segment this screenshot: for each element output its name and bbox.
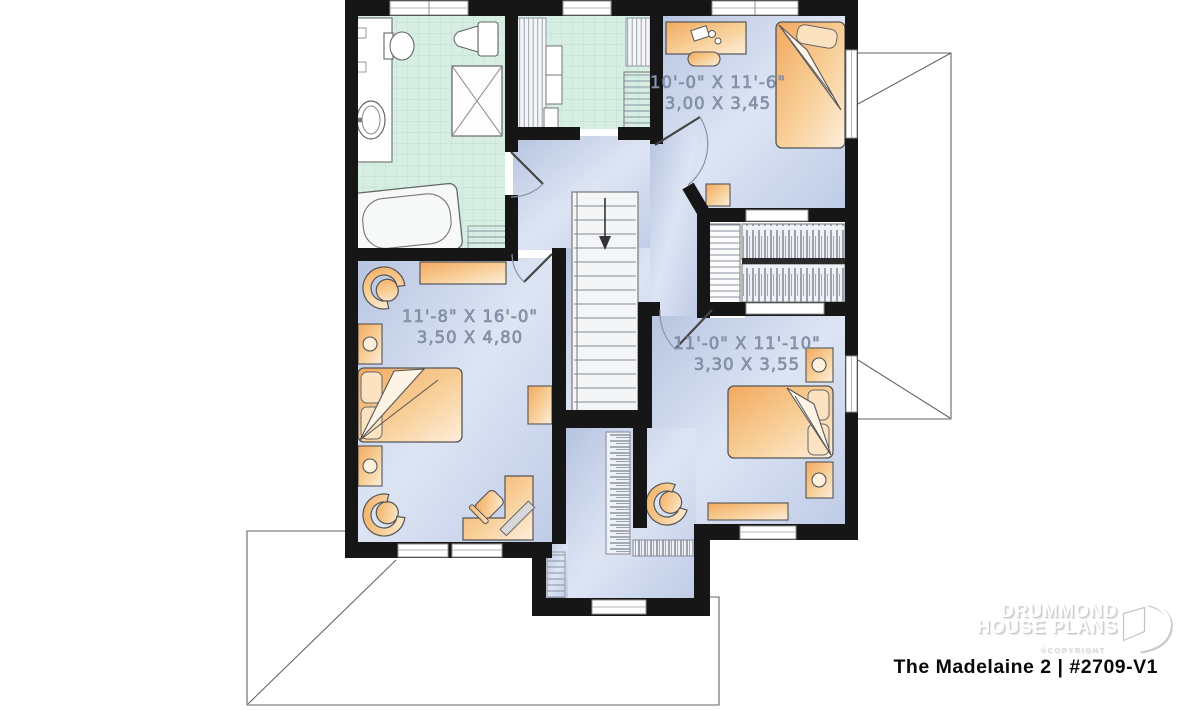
closet-rod-lower-icon — [742, 264, 845, 302]
bed-icon — [358, 368, 462, 442]
window-icon — [563, 1, 611, 15]
nightstand-lamp-icon — [358, 446, 382, 486]
toilet-icon — [384, 32, 414, 60]
closet-door-icon — [746, 303, 824, 314]
hall-floor-east — [650, 136, 697, 316]
dimension-metric: 3,50 X 4,80 — [375, 327, 565, 348]
window-icon — [740, 526, 796, 539]
floor-plan-page: 10'-0" X 11'-6" 3,00 X 3,45 11'-8" X 16'… — [0, 0, 1200, 711]
staircase — [572, 192, 638, 418]
shower-icon — [452, 66, 502, 136]
window-icon — [846, 50, 857, 138]
sink-icon — [357, 101, 385, 139]
copyright-text: ©COPYRIGHT — [1030, 646, 1116, 655]
hanging-rod-left-icon — [516, 18, 546, 132]
side-table-icon — [528, 386, 552, 424]
hanging-rod-right-icon — [626, 18, 652, 66]
dimension-metric: 3,30 X 3,55 — [652, 354, 842, 375]
plan-title: The Madelaine 2 | #2709-V1 — [850, 656, 1158, 679]
bed-icon — [728, 386, 833, 458]
nightstand-lamp-icon — [806, 462, 833, 498]
nightstand-icon — [706, 184, 730, 206]
window-icon — [398, 544, 448, 557]
master-dimensions: 11'-8" X 16'-0" 3,50 X 4,80 — [375, 306, 565, 348]
dimension-imperial: 10'-0" X 11'-6" — [628, 72, 808, 93]
dimension-metric: 3,00 X 3,45 — [628, 93, 808, 114]
bedroom2-dimensions: 11'-0" X 11'-10" 3,30 X 3,55 — [652, 333, 842, 375]
window-icon — [712, 1, 798, 15]
walkin-rod-vertical-icon — [606, 432, 630, 554]
boudoir-shelves-icon — [547, 552, 565, 598]
window-icon — [452, 544, 502, 557]
window-icon — [390, 1, 468, 15]
drummond-logo-icon — [1124, 603, 1171, 652]
bathtub-icon — [351, 183, 463, 260]
dresser-icon — [420, 262, 506, 284]
brand-line2: HOUSE PLANS — [977, 617, 1118, 637]
roofline-right — [858, 53, 951, 419]
desk-chair-icon — [688, 52, 720, 66]
closet-rod-upper-icon — [742, 224, 845, 260]
closet-divider-wall — [742, 258, 845, 264]
window-icon — [592, 600, 646, 614]
dimension-imperial: 11'-8" X 16'-0" — [375, 306, 565, 327]
closet-door-icon — [746, 210, 808, 221]
bedroom1-dimensions: 10'-0" X 11'-6" 3,00 X 3,45 — [628, 72, 808, 114]
dimension-imperial: 11'-0" X 11'-10" — [652, 333, 842, 354]
window-icon — [846, 356, 857, 412]
dresser-icon — [708, 503, 788, 520]
brand-name: DRUMMOND HOUSE PLANS — [930, 603, 1118, 635]
walkin-rod-horizontal-icon — [633, 540, 693, 556]
